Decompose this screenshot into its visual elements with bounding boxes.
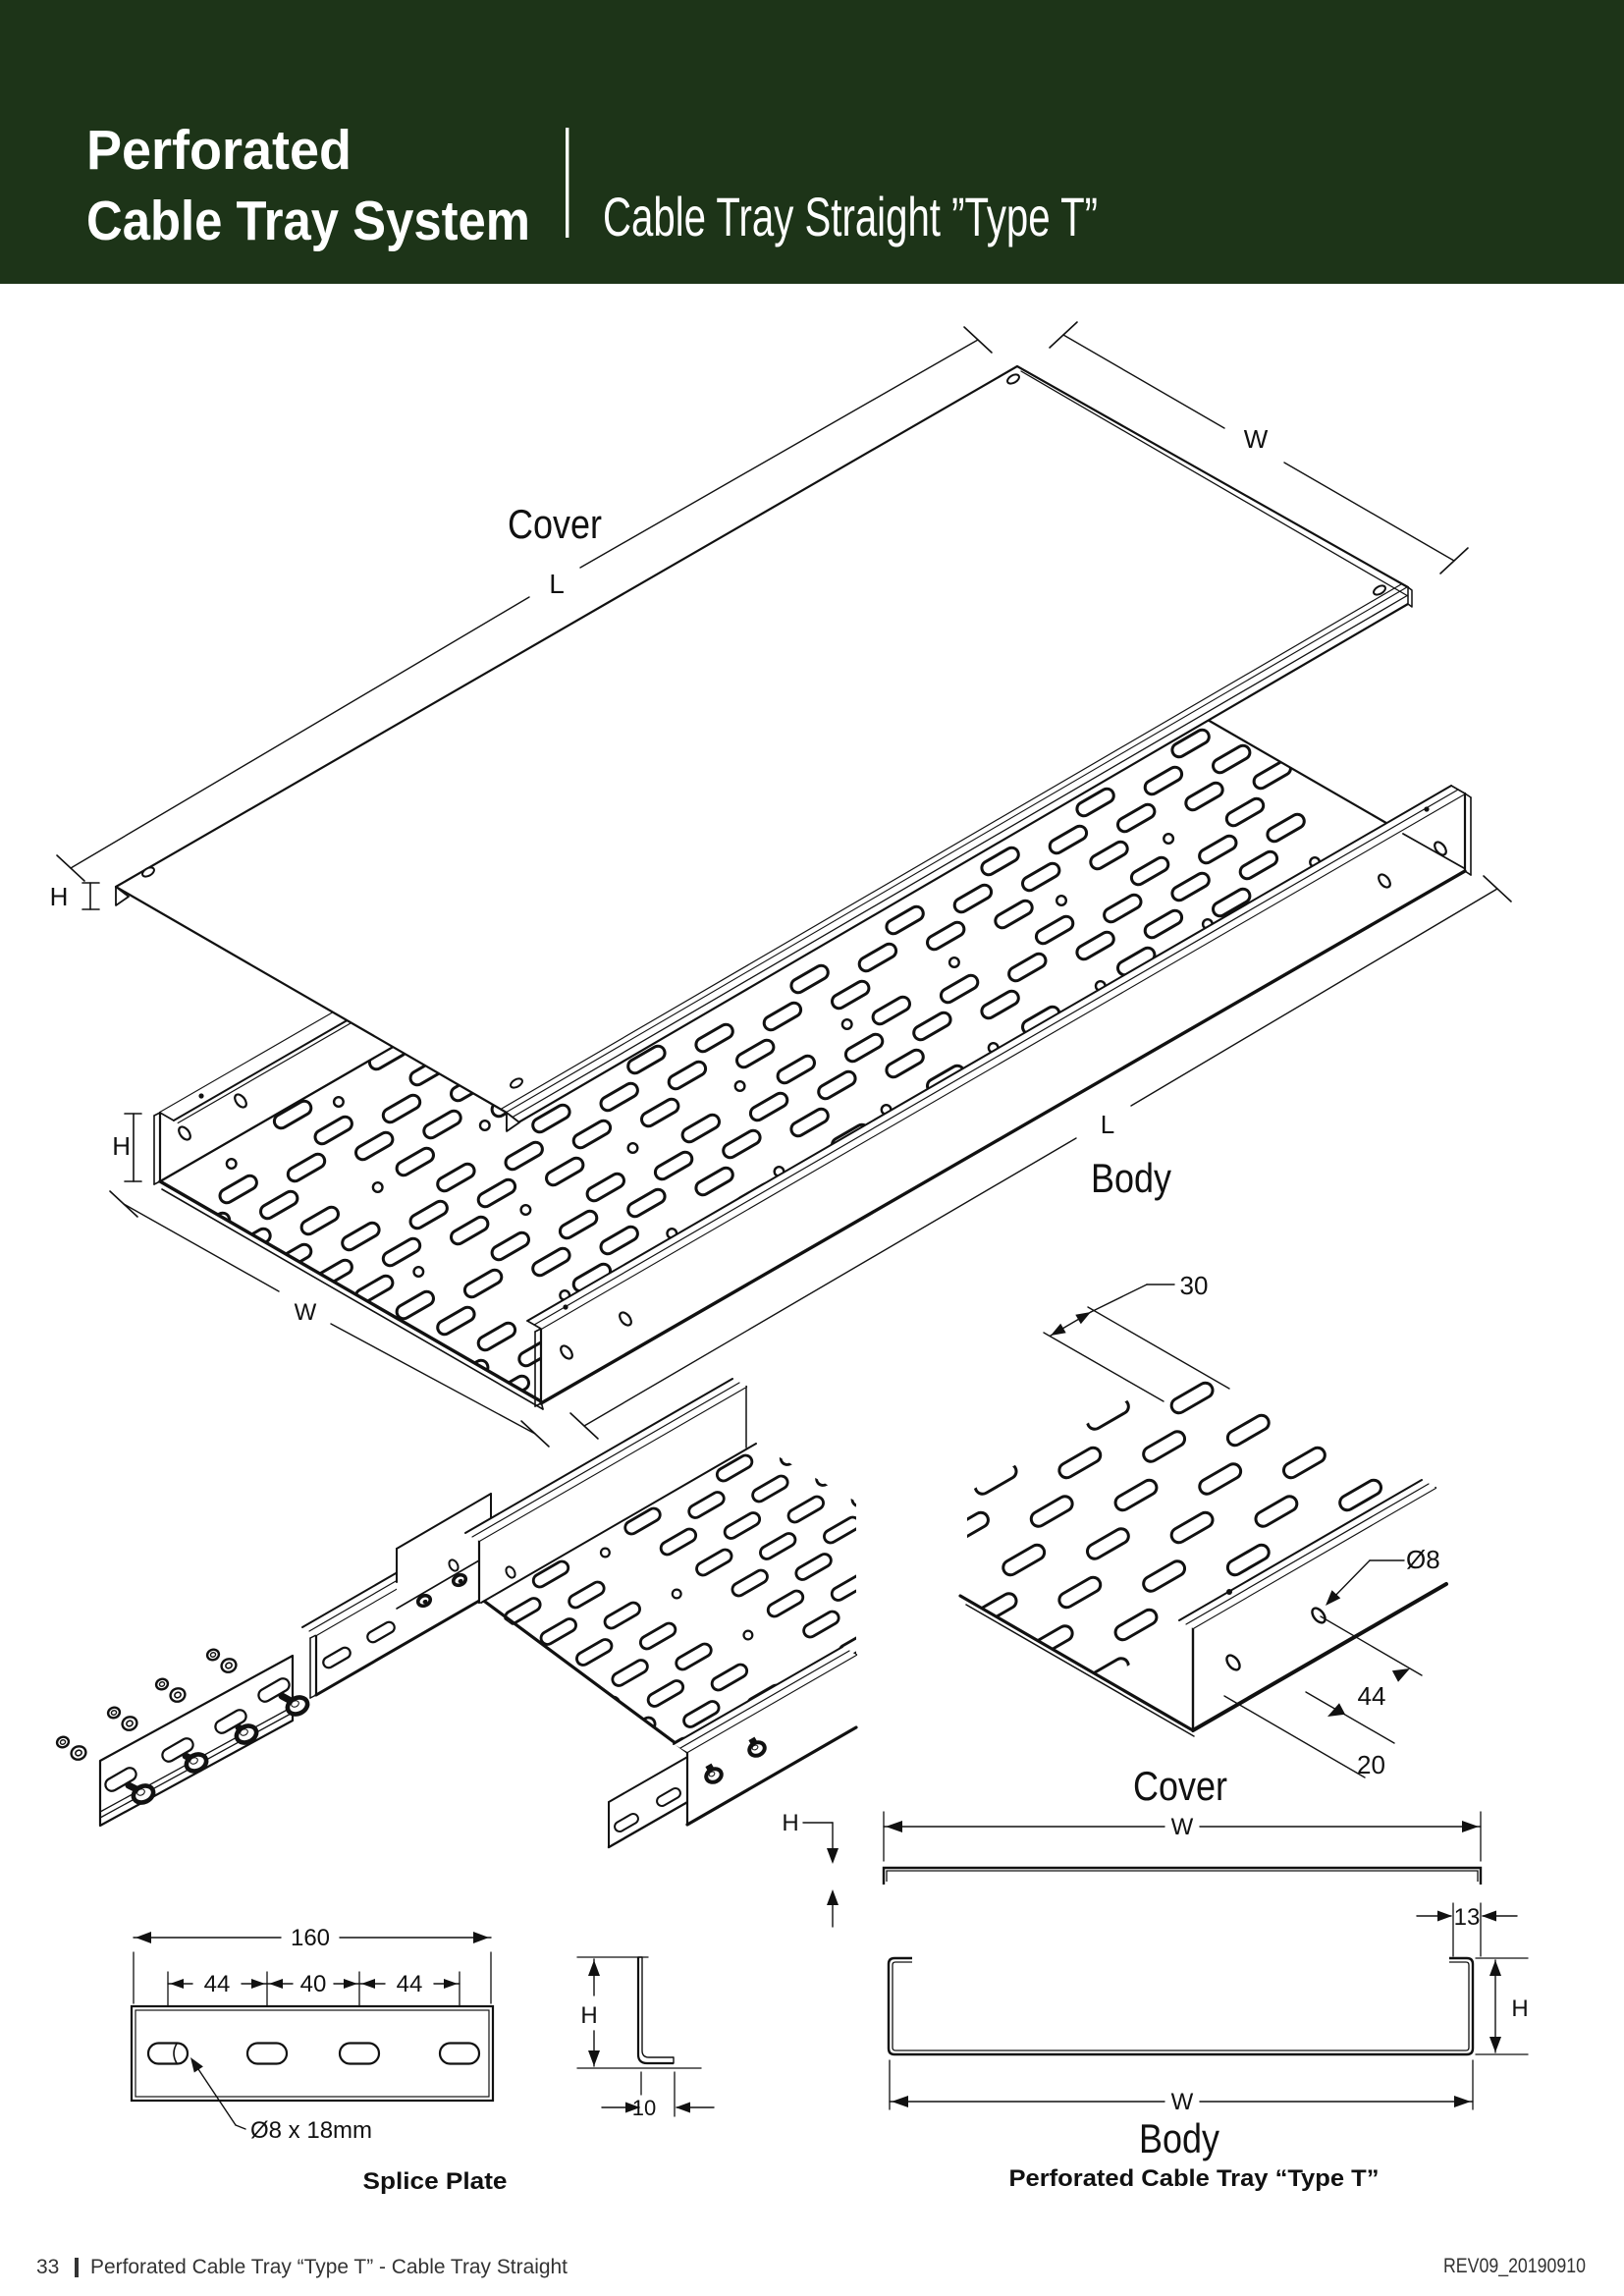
svg-text:Ø8: Ø8 [1406,1545,1440,1574]
svg-text:Cable Tray System: Cable Tray System [86,190,530,252]
svg-text:Perforated Cable Tray “Type T”: Perforated Cable Tray “Type T” - Cable T… [90,2256,568,2278]
svg-text:H: H [580,2002,597,2029]
svg-text:H: H [1511,1995,1528,2022]
svg-text:H: H [50,882,69,911]
svg-text:40: 40 [300,1971,327,1997]
svg-text:44: 44 [1358,1681,1386,1711]
svg-text:W: W [1171,2089,1194,2115]
svg-text:H: H [112,1131,131,1161]
svg-text:33: 33 [36,2256,59,2278]
svg-text:44: 44 [204,1971,231,1997]
svg-text:Splice Plate: Splice Plate [363,2168,508,2195]
svg-text:W: W [1244,424,1269,454]
svg-text:Body: Body [1091,1155,1171,1201]
svg-text:160: 160 [291,1925,330,1951]
svg-text:L: L [549,569,565,599]
svg-text:20: 20 [1357,1750,1385,1779]
svg-text:W: W [1171,1814,1194,1840]
svg-text:Cable Tray Straight ”Type T”: Cable Tray Straight ”Type T” [603,186,1098,247]
svg-text:Perforated Cable Tray “Type T”: Perforated Cable Tray “Type T” [1009,2165,1380,2192]
svg-text:W: W [295,1299,317,1326]
svg-text:Body: Body [1139,2115,1219,2161]
svg-text:Cover: Cover [508,501,602,547]
svg-text:13: 13 [1454,1904,1481,1931]
svg-text:REV09_20190910: REV09_20190910 [1443,2255,1586,2277]
svg-text:44: 44 [397,1971,423,1997]
svg-text:10: 10 [632,2096,656,2120]
svg-text:Cover: Cover [1133,1763,1227,1809]
svg-text:Ø8 x 18mm: Ø8 x 18mm [250,2117,372,2144]
svg-text:L: L [1101,1110,1114,1139]
svg-text:H: H [782,1810,798,1836]
svg-text:Perforated: Perforated [86,119,352,182]
svg-text:30: 30 [1180,1271,1209,1300]
